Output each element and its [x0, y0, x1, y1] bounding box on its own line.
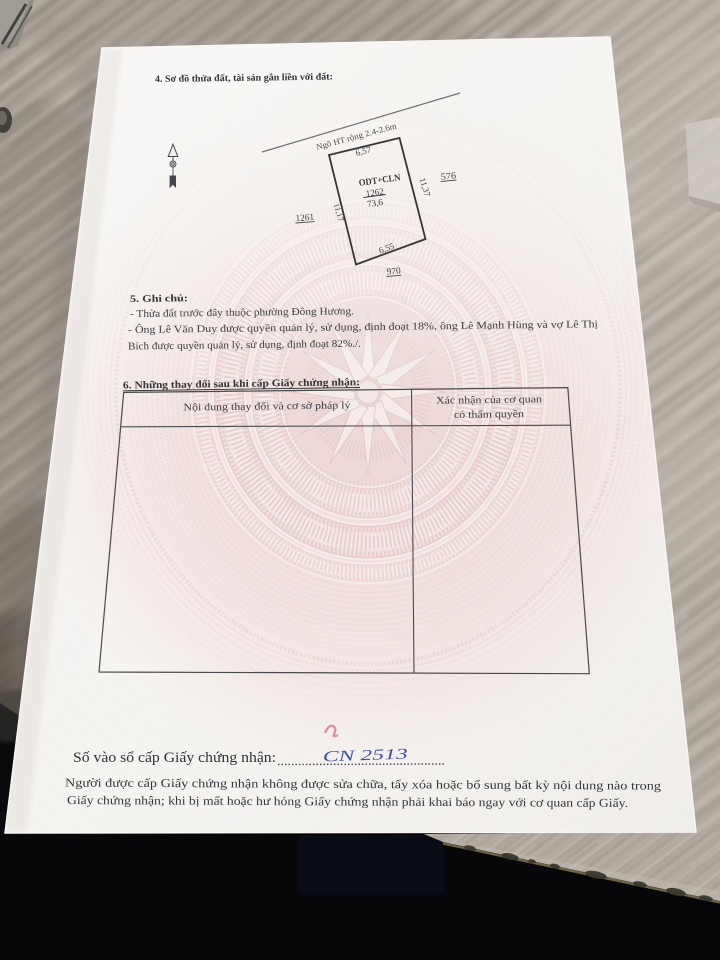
svg-text:Xác nhận của cơ quan: Xác nhận của cơ quan	[436, 394, 543, 406]
svg-text:CN 2513: CN 2513	[323, 746, 409, 766]
svg-text:Nội dung thay đổi và cơ sở phá: Nội dung thay đổi và cơ sở pháp lý	[183, 400, 351, 413]
svg-text:Giấy chứng nhận; khi bị mất ho: Giấy chứng nhận; khi bị mất hoặc hư hỏng…	[67, 793, 628, 810]
svg-text:5. Ghi chú:: 5. Ghi chú:	[130, 293, 188, 305]
svg-text:có thẩm quyền: có thẩm quyền	[454, 409, 525, 421]
svg-text:Số vào sổ cấp Giấy chứng nhận:: Số vào sổ cấp Giấy chứng nhận:	[73, 750, 276, 766]
